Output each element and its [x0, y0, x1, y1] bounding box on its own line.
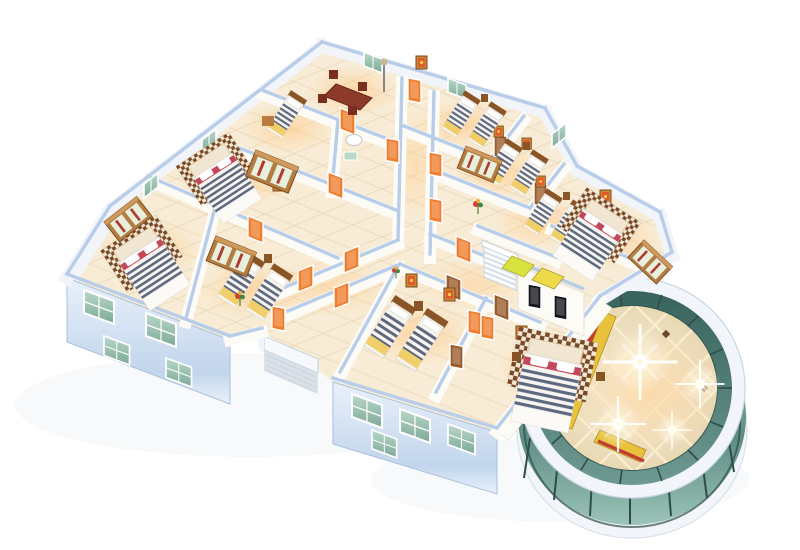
nightstand: [414, 301, 423, 311]
floorplan-render-stage: [0, 0, 800, 550]
painting: [536, 176, 545, 187]
door-double: [468, 310, 481, 335]
door: [386, 138, 399, 163]
nightstand: [512, 352, 521, 361]
door: [450, 344, 463, 369]
nightstand: [264, 254, 272, 263]
door-double: [481, 315, 494, 340]
door: [429, 152, 442, 177]
elevator-door: [528, 284, 541, 309]
painting: [444, 288, 455, 301]
elevator-door: [554, 295, 567, 320]
door: [429, 198, 442, 223]
desk: [262, 116, 274, 126]
door: [408, 78, 421, 103]
door: [272, 306, 285, 331]
painting: [416, 56, 427, 69]
nightstand: [563, 192, 570, 200]
nightstand: [596, 372, 605, 381]
painting: [406, 274, 417, 287]
floorplan-svg: [0, 0, 800, 550]
nightstand: [523, 142, 530, 150]
nightstand: [481, 94, 488, 102]
